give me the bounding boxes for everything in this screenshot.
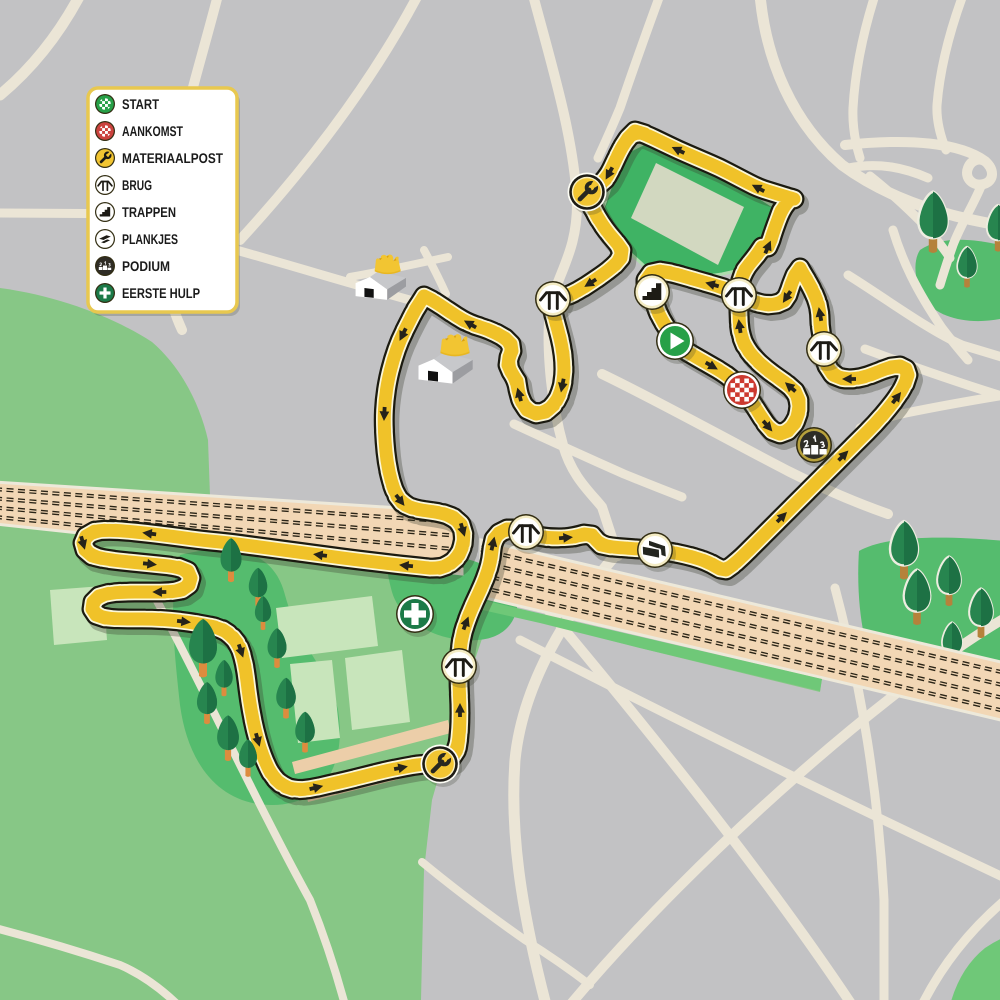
svg-text:TRAPPEN: TRAPPEN bbox=[122, 204, 176, 220]
svg-text:PODIUM: PODIUM bbox=[122, 258, 170, 274]
svg-text:AANKOMST: AANKOMST bbox=[122, 123, 183, 139]
svg-text:START: START bbox=[122, 96, 159, 112]
svg-text:BRUG: BRUG bbox=[122, 177, 152, 193]
svg-text:MATERIAALPOST: MATERIAALPOST bbox=[122, 150, 223, 166]
svg-text:PLANKJES: PLANKJES bbox=[122, 231, 178, 247]
svg-text:EERSTE HULP: EERSTE HULP bbox=[122, 285, 200, 301]
